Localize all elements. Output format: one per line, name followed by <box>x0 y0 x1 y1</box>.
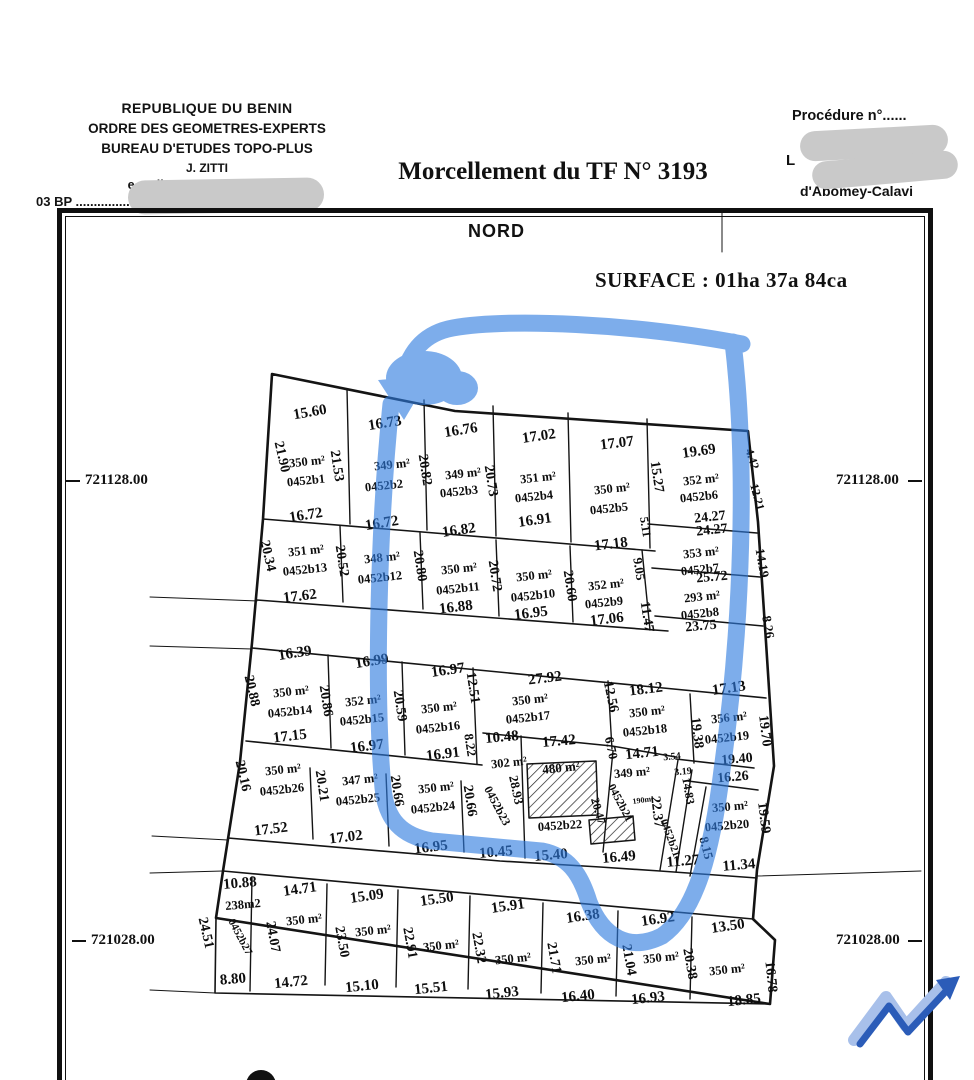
logo-zigzag <box>0 0 974 1080</box>
scanned-survey-plan: REPUBLIQUE DU BENIN ORDRE DES GEOMETRES-… <box>0 0 974 1080</box>
